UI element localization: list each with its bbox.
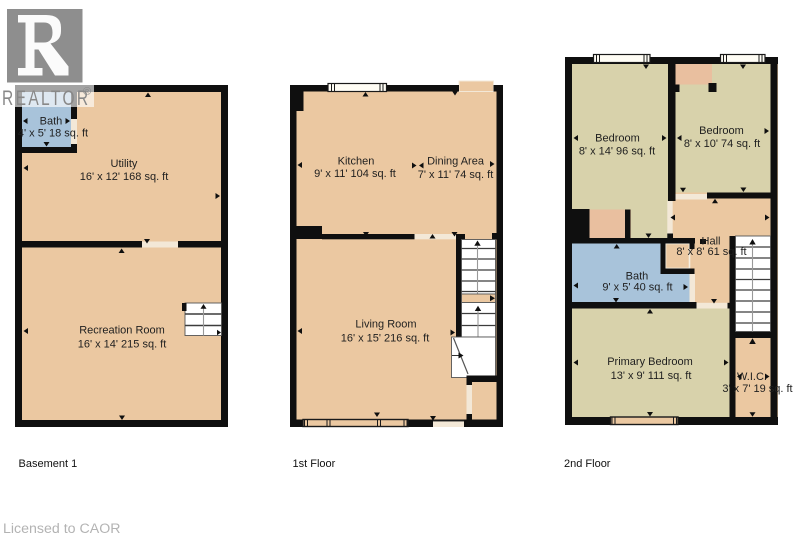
svg-text:Kitchen: Kitchen [338, 156, 375, 168]
svg-text:4' x 5' 18 sq. ft: 4' x 5' 18 sq. ft [18, 128, 88, 140]
svg-text:Utility: Utility [111, 158, 138, 170]
svg-text:9' x 11' 104 sq. ft: 9' x 11' 104 sq. ft [314, 168, 396, 180]
svg-text:8' x 14' 96 sq. ft: 8' x 14' 96 sq. ft [579, 146, 655, 158]
svg-text:Recreation Room: Recreation Room [79, 325, 165, 337]
svg-text:Primary Bedroom: Primary Bedroom [607, 356, 693, 368]
svg-text:Bath: Bath [40, 116, 63, 128]
svg-text:8' x 10' 74 sq. ft: 8' x 10' 74 sq. ft [684, 138, 760, 150]
svg-text:W.I.C.: W.I.C. [737, 371, 767, 383]
svg-text:Bedroom: Bedroom [699, 125, 744, 137]
svg-text:9' x 5' 40 sq. ft: 9' x 5' 40 sq. ft [602, 282, 672, 294]
svg-text:REALTOR: REALTOR [2, 86, 91, 110]
svg-text:3' x 7' 19 sq. ft: 3' x 7' 19 sq. ft [722, 383, 792, 395]
svg-text:7' x 11' 74 sq. ft: 7' x 11' 74 sq. ft [418, 169, 494, 181]
svg-text:16' x 14' 215 sq. ft: 16' x 14' 215 sq. ft [78, 339, 167, 351]
svg-text:Dining Area: Dining Area [427, 156, 485, 168]
svg-text:Living Room: Living Room [355, 319, 416, 331]
svg-text:8' x 8' 61 sq. ft: 8' x 8' 61 sq. ft [676, 246, 746, 258]
svg-text:16' x 15' 216 sq. ft: 16' x 15' 216 sq. ft [341, 333, 430, 345]
svg-text:Licensed to CAOR: Licensed to CAOR [3, 521, 121, 537]
svg-text:®: ® [83, 86, 91, 98]
svg-text:13' x 9' 111 sq. ft: 13' x 9' 111 sq. ft [611, 370, 692, 382]
svg-text:2nd Floor: 2nd Floor [564, 458, 611, 470]
svg-text:16' x 12' 168 sq. ft: 16' x 12' 168 sq. ft [80, 171, 169, 183]
svg-text:Bedroom: Bedroom [595, 133, 640, 145]
svg-text:Basement 1: Basement 1 [19, 458, 78, 470]
svg-text:1st Floor: 1st Floor [293, 458, 336, 470]
